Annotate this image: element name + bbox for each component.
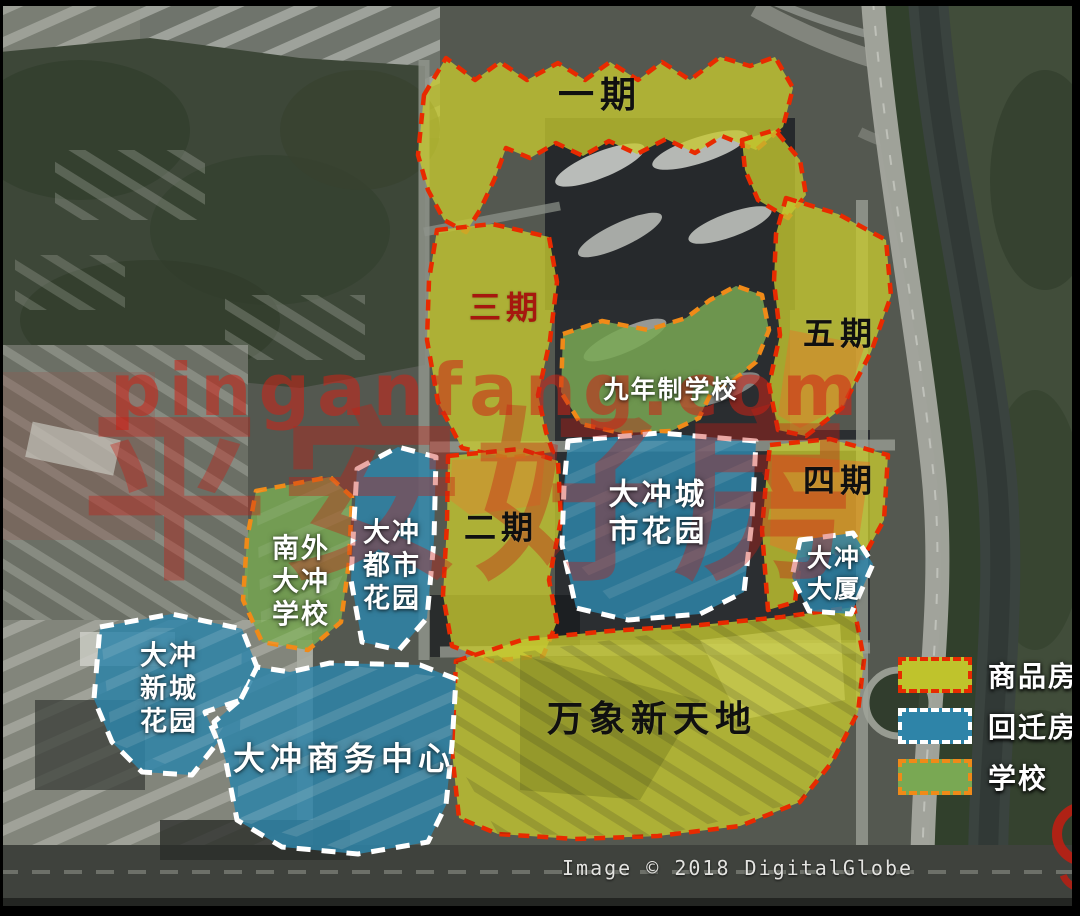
frame-edge-bottom [0,906,1080,916]
zone-dushi-garden [351,447,436,650]
legend-swatch-relocation [898,708,972,744]
legend-label-commodity: 商品房 [988,655,1078,695]
map-legend: 商品房 回迁房 学校 [898,655,1078,808]
frame-edge-left [0,0,3,916]
legend-label-relocation: 回迁房 [988,706,1078,746]
frame-edge-top [0,0,1080,6]
legend-row-relocation: 回迁房 [898,706,1078,746]
legend-swatch-school [898,759,972,795]
legend-swatch-commodity [898,657,972,693]
imagery-attribution: Image © 2018 DigitalGlobe [562,856,913,880]
legend-label-school: 学校 [988,757,1048,797]
frame-edge-right [1072,0,1080,916]
legend-row-school: 学校 [898,757,1078,797]
legend-row-commodity: 商品房 [898,655,1078,695]
satellite-map-image: 一期 三期 五期 九年制学校 二期 大冲城 市花园 四期 大冲 大厦 南外 大冲… [0,0,1080,916]
